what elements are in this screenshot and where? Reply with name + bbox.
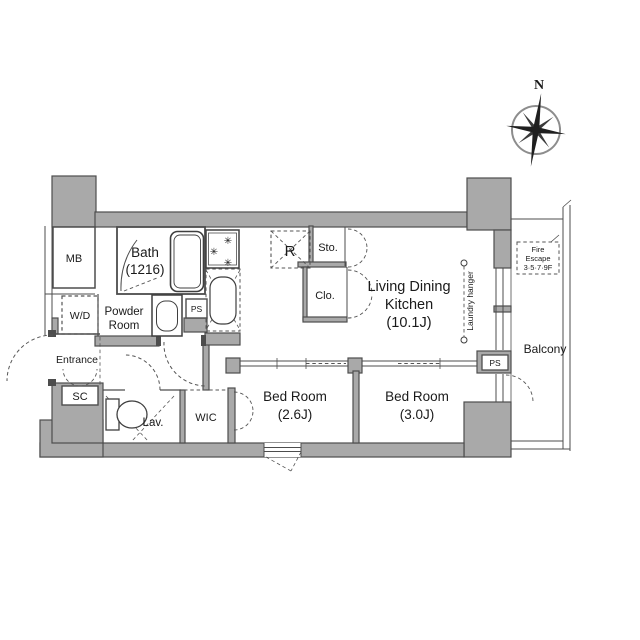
room-label-entrance: Entrance: [56, 354, 98, 366]
wall-segment: [52, 176, 96, 227]
room-label-bedroom2-size: (3.0J): [400, 407, 435, 422]
room-label-powder-2: Room: [109, 320, 140, 332]
door-jamb: [48, 330, 56, 337]
room-label-ldk-size: (10.1J): [386, 315, 431, 331]
room-label-ps-balcony: PS: [489, 358, 501, 368]
room-label-powder-1: Powder: [105, 306, 144, 318]
bath-room: [117, 227, 205, 294]
wall-segment: [494, 230, 511, 268]
annotation-laundry-hanger: Laundry hanger: [465, 271, 475, 331]
wall-segment: [203, 344, 209, 390]
room-label-sc: SC: [72, 391, 87, 403]
lav-door-arc: [125, 355, 160, 390]
room-label-wic: WIC: [195, 412, 216, 424]
wall-segment: [205, 333, 240, 345]
floor-plan-drawing: N: [0, 0, 640, 640]
room-label-refrigerator: R: [285, 243, 296, 260]
wall-segment: [180, 390, 185, 443]
wall-segment: [467, 178, 511, 230]
room-label-ldk-1: Living Dining: [367, 279, 450, 295]
room-label-ps-kitchen: PS: [191, 304, 203, 314]
wall-segment: [353, 371, 359, 443]
wall-segment: [226, 358, 240, 373]
wall-segment: [228, 388, 235, 443]
balcony-windows: [496, 268, 533, 402]
hall-door-arc: [164, 342, 206, 386]
room-label-lav: Lav.: [143, 417, 164, 429]
wall-segment: [303, 317, 347, 322]
lavatory-room: [103, 390, 181, 441]
wall-segment: [95, 336, 159, 346]
room-label-ldk-2: Kitchen: [385, 297, 433, 313]
compass-rose-icon: N: [501, 78, 571, 171]
room-label-bedroom2: Bed Room: [385, 389, 449, 404]
room-label-bath: Bath: [131, 245, 159, 260]
door-jamb: [201, 335, 206, 346]
balcony-door-arc: [506, 375, 533, 402]
compass-north-label: N: [534, 78, 544, 93]
bedroom1-window: [264, 443, 301, 471]
storage-closet-doors: [345, 227, 372, 318]
floor-plan-page: N: [0, 0, 640, 640]
burner-icon: ✳: [224, 236, 232, 247]
room-label-closet: Clo.: [315, 290, 335, 302]
balcony-outline: [511, 200, 571, 451]
room-label-mb: MB: [66, 253, 83, 265]
wall-segment: [184, 318, 207, 332]
kitchen-counter: ✳ ✳ ✳: [206, 230, 240, 331]
door-jamb: [48, 379, 56, 386]
room-label-bath-size: (1216): [125, 262, 164, 277]
room-label-wd: W/D: [70, 310, 91, 322]
wic-bifold-doors: [234, 392, 253, 430]
room-label-bedroom1-size: (2.6J): [278, 407, 313, 422]
wall-segment: [95, 212, 467, 227]
annotation-fire-escape-2: Escape: [525, 254, 550, 263]
wall-segment: [303, 267, 307, 320]
wall-segment: [298, 262, 346, 267]
room-label-storage: Sto.: [318, 242, 338, 254]
annotation-fire-escape-3: 3·5·7·9F: [524, 263, 553, 272]
entrance-door-arc: [7, 335, 53, 381]
burner-icon: ✳: [224, 258, 232, 269]
room-label-bedroom1: Bed Room: [263, 389, 327, 404]
burner-icon: ✳: [210, 247, 218, 258]
wall-segment: [464, 402, 511, 457]
room-label-balcony: Balcony: [524, 342, 567, 356]
sink-icon: [210, 277, 236, 324]
annotation-fire-escape-1: Fire: [532, 245, 545, 254]
